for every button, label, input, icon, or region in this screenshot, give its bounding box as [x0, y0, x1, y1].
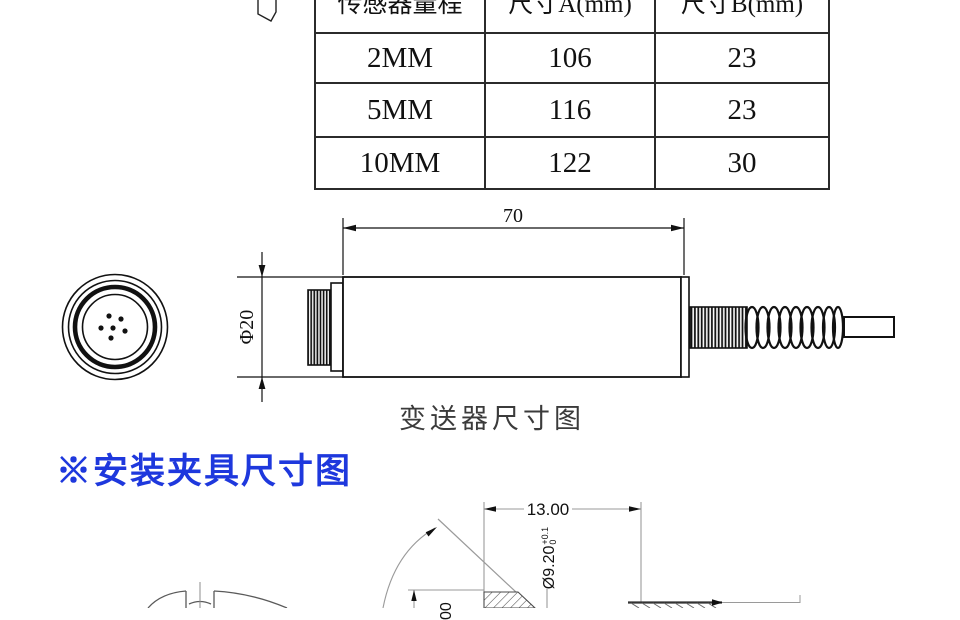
- transmitter-body: [308, 277, 689, 377]
- header-size-a: 尺寸A(mm): [485, 0, 655, 33]
- header-range: 传感器量程: [315, 0, 485, 33]
- length-dim-label: 70: [503, 205, 523, 227]
- clipped-dim-label: 00: [437, 580, 457, 620]
- arrowhead-icon: [629, 506, 641, 511]
- cell-range: 2MM: [315, 33, 485, 83]
- end-cap: [681, 277, 689, 377]
- table-header-row: 传感器量程 尺寸A(mm) 尺寸B(mm): [315, 0, 829, 33]
- threaded-nose: [308, 290, 331, 365]
- arrowhead-icon: [426, 527, 437, 537]
- cable: [844, 317, 894, 337]
- bore-dim-value: Ø9.20: [541, 546, 559, 590]
- cell-range: 5MM: [315, 83, 485, 137]
- transmitter-caption: 变送器尺寸图: [342, 397, 642, 436]
- page: { "table": { "headers": ["传感器量程", "尺寸A(m…: [0, 0, 960, 608]
- arrowhead-icon: [484, 506, 496, 511]
- cable-spring: [690, 307, 894, 348]
- table-row: 5MM 116 23: [315, 83, 829, 137]
- table-row: 2MM 106 23: [315, 33, 829, 83]
- cell-range: 10MM: [315, 137, 485, 189]
- bore-dim-label: Ø9.20+0.10: [539, 512, 561, 604]
- arrowhead-icon: [259, 377, 266, 389]
- cell-size-b: 23: [655, 83, 829, 137]
- cell-size-a: 122: [485, 137, 655, 189]
- cell-size-b: 30: [655, 137, 829, 189]
- diameter-dim-label: Φ20: [236, 310, 258, 345]
- cell-size-a: 116: [485, 83, 655, 137]
- arrowhead-icon: [343, 225, 356, 232]
- table-row: 10MM 122 30: [315, 137, 829, 189]
- clamp-top-view: [148, 582, 287, 608]
- arrowhead-icon: [712, 599, 723, 605]
- header-size-b: 尺寸B(mm): [655, 0, 829, 33]
- cell-size-a: 106: [485, 33, 655, 83]
- tolerance-lower: 0: [549, 527, 557, 545]
- collar: [331, 283, 343, 371]
- cell-size-b: 23: [655, 33, 829, 83]
- arrowhead-icon: [411, 590, 416, 601]
- section-hatch-triangle: [484, 592, 535, 608]
- fixture-side-bar: [628, 595, 800, 608]
- fixture-drawing: 13.00: [0, 490, 960, 608]
- angle-arc: [383, 528, 435, 608]
- arrowhead-icon: [671, 225, 684, 232]
- sensor-size-table: 传感器量程 尺寸A(mm) 尺寸B(mm) 2MM 106 23 5MM 116…: [314, 0, 830, 190]
- bore-dim-tolerance: +0.10: [541, 527, 557, 545]
- housing: [343, 277, 681, 377]
- fixture-section-heading: ※安装夹具尺寸图: [56, 443, 352, 494]
- arrowhead-icon: [259, 265, 266, 277]
- connector-pins: [98, 313, 127, 340]
